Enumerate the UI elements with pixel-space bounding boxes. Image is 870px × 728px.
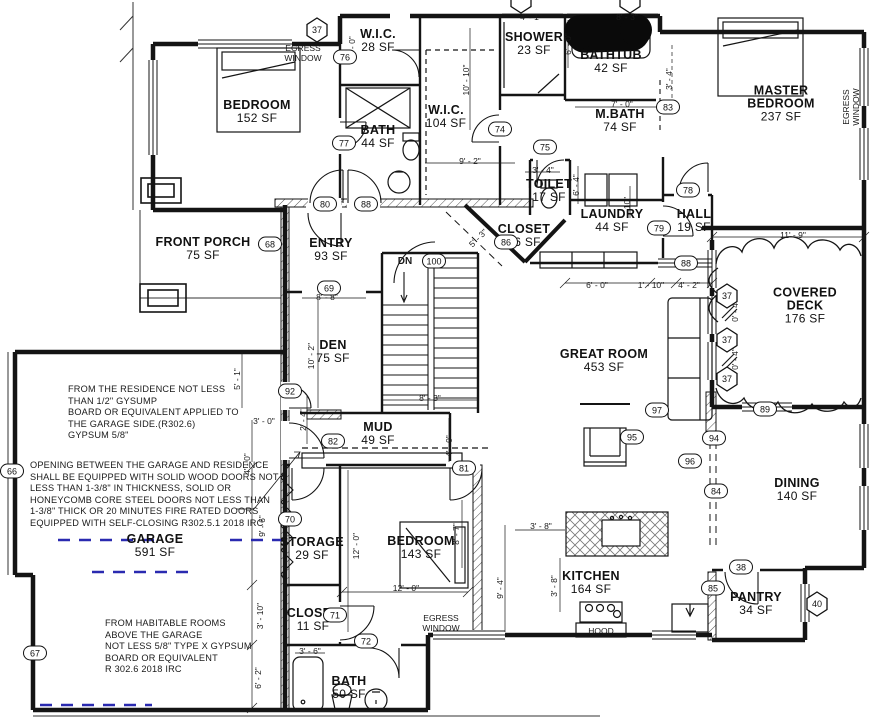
redaction-blob [564,13,652,54]
interior-walls [285,16,805,645]
porch-column [140,178,186,312]
deck-cloud [709,237,861,413]
door-swings [289,50,758,678]
door-gaps [281,12,760,650]
windows [148,39,869,640]
exterior-walls [15,16,864,710]
floor-plan-linework [0,0,870,728]
stairs [382,255,478,410]
floor-plan: BEDROOM152 SFW.I.C.28 SFBATH44 SFW.I.C.1… [0,0,870,728]
roof-lines [8,2,600,716]
note-leader-line [236,452,300,509]
garage-dashed-lines [40,540,283,705]
